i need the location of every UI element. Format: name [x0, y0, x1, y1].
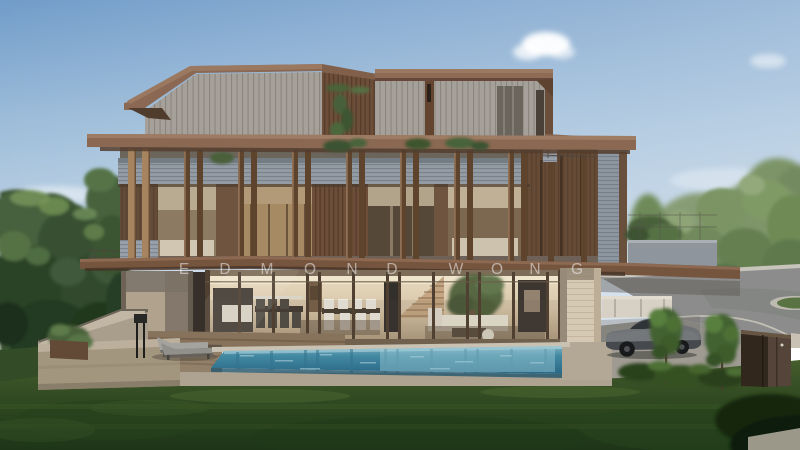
svg-text:N: N: [346, 261, 357, 278]
svg-text:W: W: [449, 261, 464, 278]
svg-text:D: D: [219, 261, 230, 278]
svg-text:D: D: [386, 261, 397, 278]
svg-text:G: G: [571, 261, 583, 278]
svg-text:E: E: [179, 261, 189, 278]
svg-text:O: O: [491, 261, 503, 278]
svg-text:O: O: [304, 261, 316, 278]
svg-text:N: N: [529, 261, 540, 278]
svg-text:M: M: [261, 261, 274, 278]
